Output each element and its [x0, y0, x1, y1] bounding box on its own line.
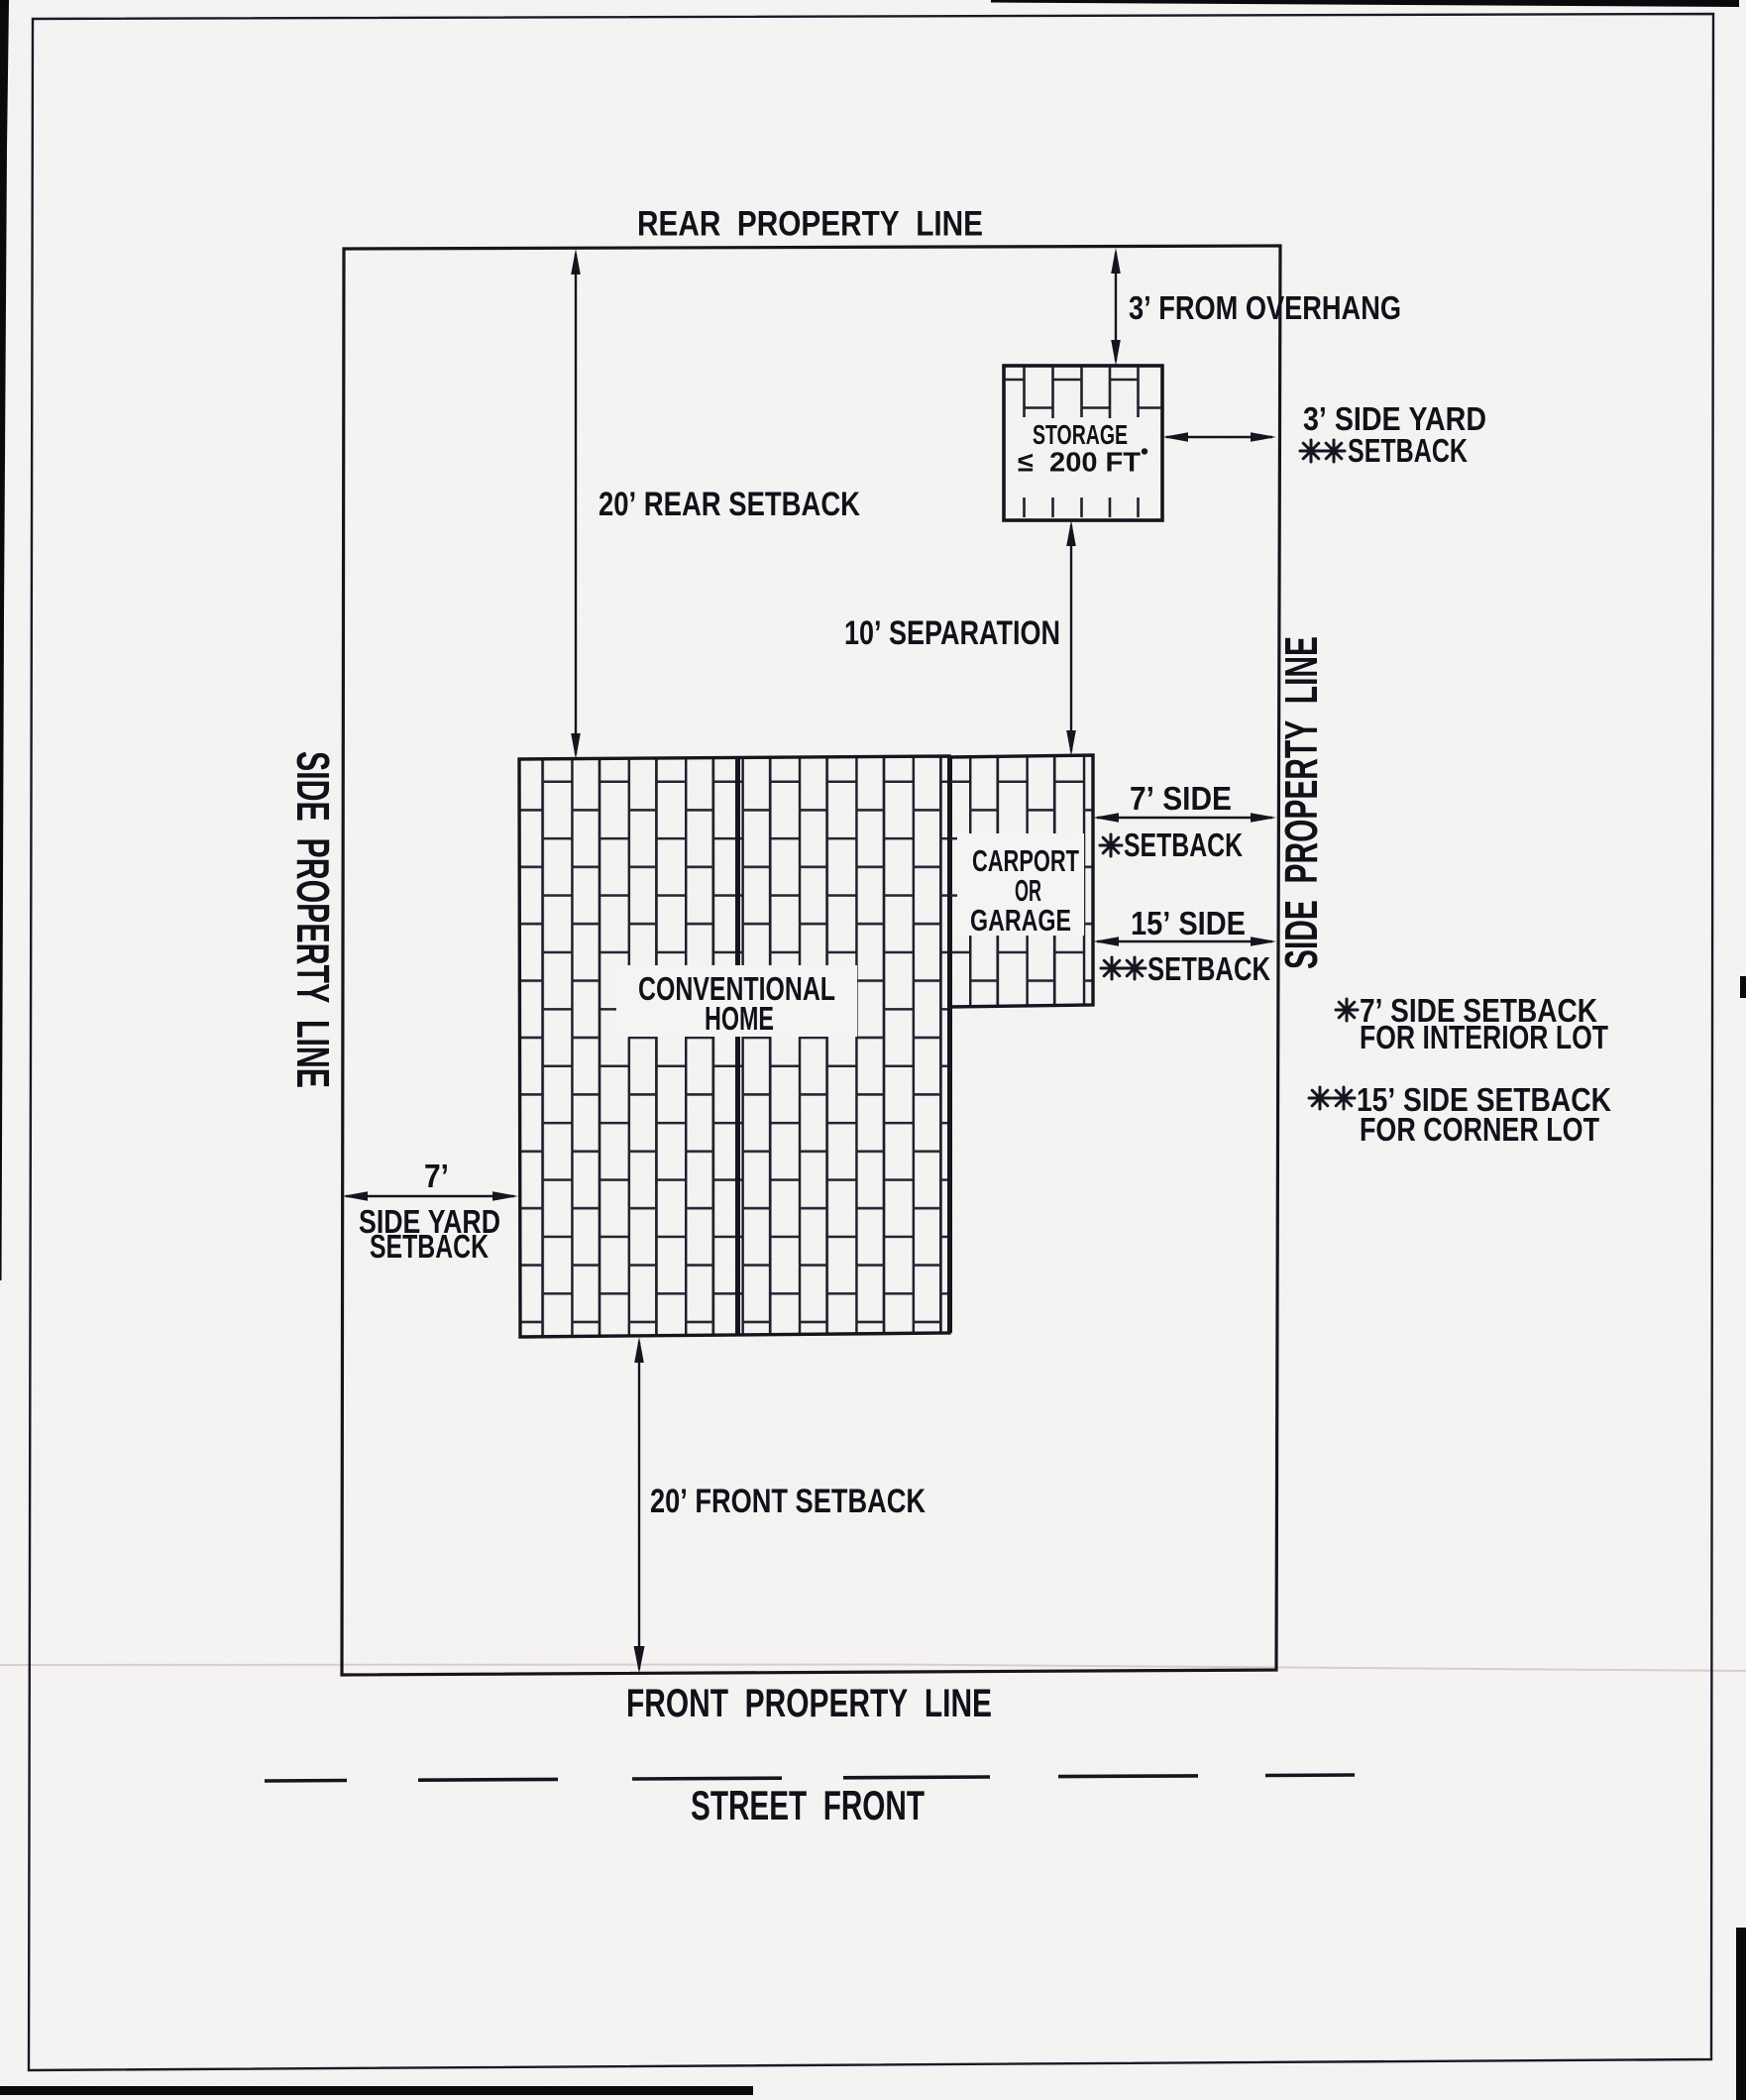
svg-text:20’ REAR SETBACK: 20’ REAR SETBACK [599, 486, 860, 523]
svg-text:HOME: HOME [705, 1000, 774, 1037]
svg-text:FRONT PROPERTY LINE: FRONT PROPERTY LINE [626, 1682, 992, 1725]
svg-text:REAR PROPERTY LINE: REAR PROPERTY LINE [637, 205, 983, 244]
svg-text:SETBACK: SETBACK [1147, 950, 1270, 987]
svg-text:SETBACK: SETBACK [1348, 432, 1468, 469]
svg-text:≤ 200 FT: ≤ 200 FT [1018, 447, 1141, 478]
svg-text:GARAGE: GARAGE [970, 903, 1071, 938]
svg-text:10’ SEPARATION: 10’ SEPARATION [844, 614, 1060, 652]
svg-text:7’ SIDE: 7’ SIDE [1130, 780, 1232, 817]
svg-text:STREET FRONT: STREET FRONT [691, 1782, 925, 1828]
svg-text:20’ FRONT SETBACK: 20’ FRONT SETBACK [650, 1483, 926, 1520]
svg-text:7’: 7’ [424, 1158, 449, 1194]
svg-text:STORAGE: STORAGE [1033, 419, 1128, 450]
svg-text:FOR CORNER LOT: FOR CORNER LOT [1360, 1111, 1599, 1148]
svg-text:FOR INTERIOR LOT: FOR INTERIOR LOT [1360, 1019, 1608, 1055]
svg-text:SETBACK: SETBACK [1124, 827, 1243, 863]
svg-text:SIDE PROPERTY LINE: SIDE PROPERTY LINE [287, 751, 339, 1088]
svg-text:15’ SIDE: 15’ SIDE [1131, 905, 1246, 941]
svg-text:SETBACK: SETBACK [370, 1228, 489, 1265]
svg-text:SIDE PROPERTY LINE: SIDE PROPERTY LINE [1275, 636, 1327, 969]
svg-text:3’ FROM OVERHANG: 3’ FROM OVERHANG [1129, 289, 1401, 326]
